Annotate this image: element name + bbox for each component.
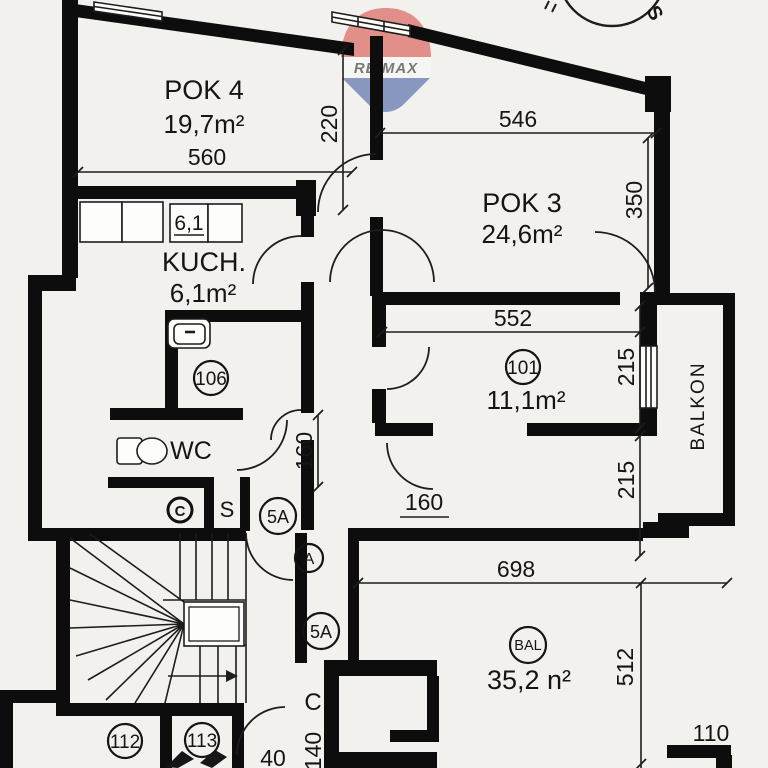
room-label-pok4: POK 4 — [164, 75, 244, 105]
room-area-pok3: 24,6m² — [482, 219, 563, 249]
room-area-pok4: 19,7m² — [164, 109, 245, 139]
room-area-bal: 35,2 n² — [487, 665, 571, 695]
stair-landing — [184, 602, 244, 646]
dim-215-lower: 215 — [613, 461, 639, 499]
badge-label-112: 112 — [110, 732, 140, 753]
dim-560: 560 — [188, 144, 226, 170]
dim-140: 140 — [300, 732, 326, 768]
badge-label-101: 101 — [507, 358, 539, 379]
room-label-pok3: POK 3 — [482, 188, 562, 218]
dim-350: 350 — [621, 181, 647, 219]
cabinet-1 — [80, 202, 122, 242]
room-label-balkon: BALKON — [688, 361, 709, 450]
badge-label-113: 113 — [187, 731, 217, 752]
remax-logo-text: RE/MAX — [354, 60, 418, 77]
toilet — [117, 438, 167, 464]
window-balkon — [640, 346, 657, 408]
dim-220: 220 — [316, 105, 342, 143]
boiler-symbol: C — [168, 498, 192, 522]
dim-698: 698 — [497, 556, 535, 582]
badge-label-106: 106 — [195, 369, 227, 390]
dim-160-horizontal: 160 — [405, 489, 443, 515]
kitchen-cabinets: 6,1 — [80, 202, 242, 242]
badge-label-5a-upper: 5A — [267, 507, 289, 527]
dim-512: 512 — [612, 648, 638, 686]
shaft-label-s: S — [220, 497, 235, 522]
dim-215-upper: 215 — [613, 348, 639, 386]
toilet-bowl — [137, 438, 167, 464]
corridor-label-c: C — [304, 689, 321, 716]
room-area-kuch: 6,1m² — [170, 278, 237, 308]
room-label-kuch: KUCH. — [162, 247, 246, 277]
cabinet-3 — [208, 204, 242, 242]
badge-label-a: A — [304, 551, 315, 568]
room-area-101: 11,1m² — [487, 385, 566, 415]
dim-160-vertical: 160 — [291, 432, 317, 470]
room-label-wc: WC — [170, 437, 212, 465]
cabinet-2 — [122, 202, 163, 242]
badge-label-5a-lower: 5A — [310, 622, 332, 642]
dim-552: 552 — [494, 305, 532, 331]
dim-40: 40 — [260, 745, 286, 768]
boiler-label: C — [175, 503, 186, 520]
cabinet-tag-label: 6,1 — [174, 212, 203, 235]
sink-basin — [174, 324, 205, 344]
badge-label-bal: BAL — [514, 638, 541, 654]
floor-plan-svg: RE/MAX S 6,1 C — [0, 0, 768, 768]
dim-110: 110 — [693, 720, 730, 746]
sink — [168, 319, 210, 348]
dim-546: 546 — [499, 106, 537, 132]
